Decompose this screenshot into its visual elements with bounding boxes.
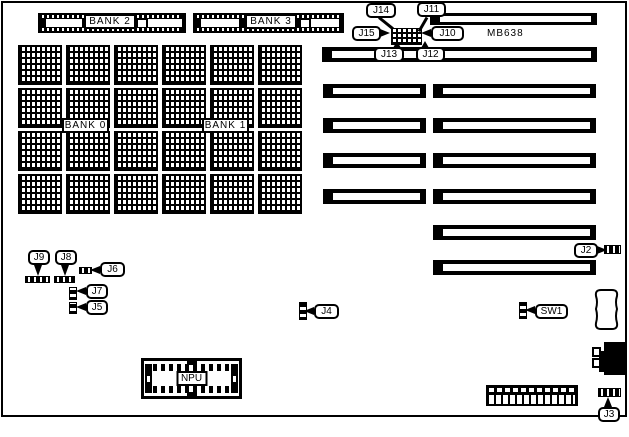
leader-line [34, 265, 42, 276]
expansion-slot [323, 84, 426, 98]
leader-line [61, 265, 69, 276]
leader-line [525, 306, 535, 314]
expansion-slot [430, 13, 597, 25]
din-connector-pad [592, 347, 601, 357]
callout-j15: J15 [352, 26, 381, 41]
bottom-edge-connector [486, 385, 578, 406]
memory-chip [258, 45, 302, 85]
expansion-slot [433, 189, 596, 204]
bank3-label: BANK 3 [245, 14, 297, 29]
memory-chip [18, 45, 62, 85]
bank0-label: BANK 0 [62, 118, 109, 133]
simm-slot-window [148, 19, 182, 27]
expansion-slot [323, 118, 426, 133]
callout-j3: J3 [598, 407, 620, 422]
bank1-label: BANK 1 [202, 118, 249, 133]
expansion-slot [323, 153, 426, 168]
j8-header [54, 276, 75, 283]
callout-sw1: SW1 [535, 304, 568, 319]
leader-line [421, 29, 431, 37]
expansion-slot [323, 189, 426, 204]
callout-j12: J12 [416, 47, 445, 62]
bank2-label: BANK 2 [84, 14, 136, 29]
callout-j14: J14 [366, 3, 396, 18]
simm-slot-window [311, 19, 339, 27]
callout-j7: J7 [86, 284, 108, 299]
memory-chip [114, 131, 158, 171]
memory-chip [162, 45, 206, 85]
expansion-slot [433, 260, 596, 275]
simm-slot-window [46, 19, 82, 27]
expansion-slot [433, 153, 596, 168]
npu-socket-end [145, 364, 152, 393]
callout-j2: J2 [574, 243, 598, 258]
model-text: MB638 [487, 28, 524, 39]
leader-line [597, 246, 607, 254]
memory-chip [18, 131, 62, 171]
memory-chip [162, 131, 206, 171]
keyboard-connector-outline [593, 288, 620, 336]
callout-j8: J8 [55, 250, 77, 265]
memory-chip [66, 174, 110, 214]
din-connector-pad [592, 358, 601, 368]
motherboard-diagram: BANK 2 BANK 3 BANK 0 BANK 1 MB638 J14 J1… [0, 0, 629, 437]
memory-chip [114, 88, 158, 128]
expansion-slot [433, 84, 596, 98]
npu-socket-end [231, 364, 238, 393]
npu-socket-tab [187, 360, 197, 365]
memory-chip [66, 131, 110, 171]
simm-socket-bank2: BANK 2 [38, 13, 186, 33]
npu-socket: NPU [141, 358, 242, 399]
npu-label: NPU [176, 371, 207, 386]
simm-socket-bank3: BANK 3 [193, 13, 344, 33]
callout-j13: J13 [374, 47, 404, 62]
memory-chip [18, 88, 62, 128]
memory-chip [162, 88, 206, 128]
memory-chip [210, 131, 254, 171]
callout-j6: J6 [100, 262, 125, 277]
memory-chip [114, 45, 158, 85]
memory-chip [210, 174, 254, 214]
callout-j9: J9 [28, 250, 50, 265]
memory-chip [18, 174, 62, 214]
memory-chip [210, 45, 254, 85]
expansion-slot [433, 225, 596, 240]
leader-line [76, 287, 86, 295]
callout-j11: J11 [417, 2, 446, 17]
simm-key [138, 20, 146, 27]
expansion-slot [322, 47, 597, 62]
j9-header [25, 276, 50, 283]
memory-chip [258, 174, 302, 214]
simm-key [301, 20, 309, 27]
memory-chip [66, 45, 110, 85]
leader-line [90, 266, 100, 274]
leader-line [76, 303, 86, 311]
memory-chip [114, 174, 158, 214]
memory-chip [258, 131, 302, 171]
din-connector [599, 351, 627, 372]
simm-slot-window [201, 19, 239, 27]
callout-j10: J10 [431, 26, 464, 41]
leader-line [304, 307, 314, 315]
memory-chip [258, 88, 302, 128]
npu-socket-tab [187, 392, 197, 397]
expansion-slot [433, 118, 596, 133]
memory-chip [162, 174, 206, 214]
callout-j5: J5 [86, 300, 108, 315]
j3-header [598, 388, 621, 397]
leader-line [380, 29, 390, 37]
leader-line [604, 397, 612, 407]
callout-j4: J4 [314, 304, 339, 319]
